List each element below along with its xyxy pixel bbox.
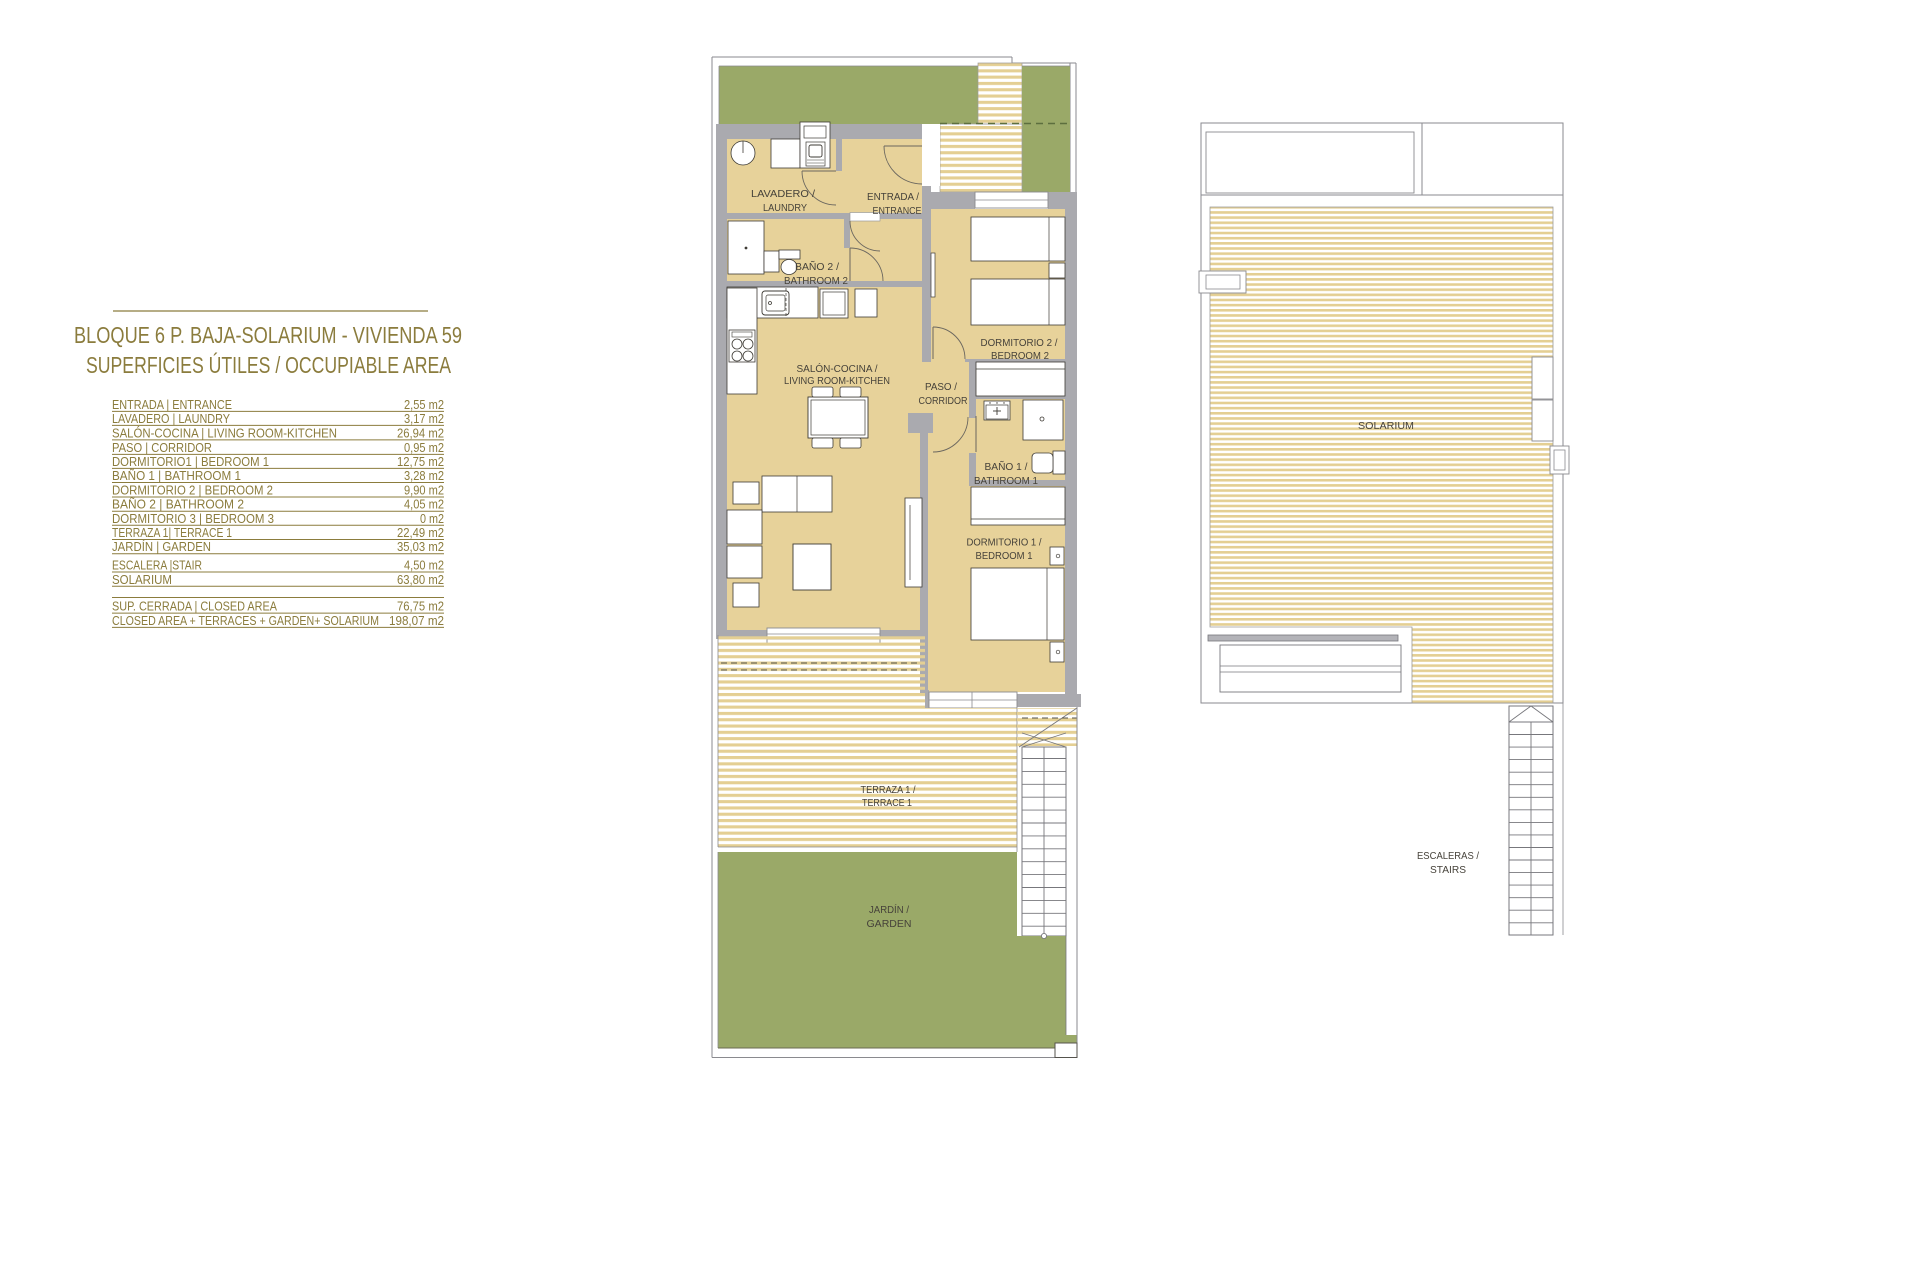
svg-text:DORMITORIO 1 /: DORMITORIO 1 / [967, 538, 1042, 549]
svg-text:9,90 m2: 9,90 m2 [404, 484, 444, 498]
svg-text:BAÑO 1 | BATHROOM 1: BAÑO 1 | BATHROOM 1 [112, 469, 241, 483]
svg-text:2,55 m2: 2,55 m2 [404, 398, 444, 412]
svg-text:4,50 m2: 4,50 m2 [404, 559, 444, 573]
svg-text:SALÓN-COCINA | LIVING ROOM-K: SALÓN-COCINA | LIVING ROOM-KITCHEN [112, 425, 337, 440]
svg-text:3,17 m2: 3,17 m2 [404, 412, 444, 426]
svg-text:JARDÍN | GARDEN: JARDÍN | GARDEN [112, 539, 211, 554]
svg-text:198,07 m2: 198,07 m2 [389, 614, 444, 628]
svg-text:LAVADERO | LAUNDRY: LAVADERO | LAUNDRY [112, 412, 231, 426]
svg-text:BEDROOM 2: BEDROOM 2 [991, 351, 1049, 362]
svg-text:PASO /: PASO / [925, 382, 957, 393]
svg-text:SOLARIUM: SOLARIUM [112, 573, 172, 587]
svg-text:PASO | CORRIDOR: PASO | CORRIDOR [112, 441, 212, 455]
svg-text:TERRAZA 1| TERRACE 1: TERRAZA 1| TERRACE 1 [112, 526, 232, 540]
svg-text:DORMITORIO 3 | BEDROOM 3: DORMITORIO 3 | BEDROOM 3 [112, 512, 274, 526]
svg-text:JARDÍN /: JARDÍN / [869, 903, 909, 916]
svg-text:TERRAZA 1 /: TERRAZA 1 / [861, 785, 916, 796]
svg-text:3,28 m2: 3,28 m2 [404, 469, 444, 483]
svg-text:ESCALERAS /: ESCALERAS / [1417, 851, 1479, 862]
svg-text:76,75 m2: 76,75 m2 [397, 600, 444, 614]
svg-text:LAUNDRY: LAUNDRY [763, 203, 807, 214]
svg-text:35,03 m2: 35,03 m2 [397, 540, 444, 554]
svg-text:26,94 m2: 26,94 m2 [397, 426, 444, 440]
svg-text:LAVADERO /: LAVADERO / [751, 189, 815, 200]
svg-text:SALÓN-COCINA /: SALÓN-COCINA / [797, 362, 878, 375]
svg-text:ESCALERA |STAIR: ESCALERA |STAIR [112, 559, 202, 573]
svg-text:DORMITORIO 2 | BEDROOM 2: DORMITORIO 2 | BEDROOM 2 [112, 484, 273, 498]
svg-text:BAÑO 1 /: BAÑO 1 / [985, 460, 1028, 473]
svg-text:CORRIDOR: CORRIDOR [919, 396, 968, 407]
svg-text:ENTRADA | ENTRANCE: ENTRADA | ENTRANCE [112, 398, 232, 412]
svg-text:BATHROOM 2: BATHROOM 2 [784, 276, 848, 287]
svg-text:SUP. CERRADA | CLOSED AREA: SUP. CERRADA | CLOSED AREA [112, 600, 278, 614]
svg-text:ENTRADA /: ENTRADA / [867, 192, 919, 203]
svg-text:DORMITORIO 2 /: DORMITORIO 2 / [981, 338, 1058, 349]
svg-text:DORMITORIO1 | BEDROOM 1: DORMITORIO1 | BEDROOM 1 [112, 455, 269, 469]
svg-text:SUPERFICIES ÚTILES / OCCUPIABL: SUPERFICIES ÚTILES / OCCUPIABLE AREA [86, 352, 452, 378]
svg-text:BLOQUE 6 P. BAJA-SOLARIUM - VI: BLOQUE 6 P. BAJA-SOLARIUM - VIVIENDA 59 [74, 322, 462, 348]
svg-text:4,05 m2: 4,05 m2 [404, 498, 444, 512]
svg-text:BEDROOM 1: BEDROOM 1 [976, 551, 1033, 562]
svg-text:63,80 m2: 63,80 m2 [397, 573, 444, 587]
svg-text:BAÑO 2 | BATHROOM 2: BAÑO 2 | BATHROOM 2 [112, 498, 244, 512]
svg-text:BATHROOM 1: BATHROOM 1 [974, 476, 1038, 487]
svg-text:BAÑO 2 /: BAÑO 2 / [795, 260, 839, 273]
svg-text:0,95 m2: 0,95 m2 [404, 441, 444, 455]
svg-text:SOLARIUM: SOLARIUM [1358, 421, 1414, 432]
svg-text:STAIRS: STAIRS [1430, 865, 1466, 876]
svg-text:CLOSED AREA + TERRACES + GARDE: CLOSED AREA + TERRACES + GARDEN+ SOLARIU… [112, 614, 379, 628]
svg-text:22,49 m2: 22,49 m2 [397, 526, 444, 540]
svg-text:0 m2: 0 m2 [420, 512, 444, 526]
svg-text:LIVING ROOM-KITCHEN: LIVING ROOM-KITCHEN [784, 376, 890, 387]
svg-text:ENTRANCE: ENTRANCE [873, 206, 922, 217]
svg-text:12,75 m2: 12,75 m2 [397, 455, 444, 469]
svg-text:TERRACE 1: TERRACE 1 [862, 798, 912, 809]
svg-text:GARDEN: GARDEN [867, 919, 912, 930]
